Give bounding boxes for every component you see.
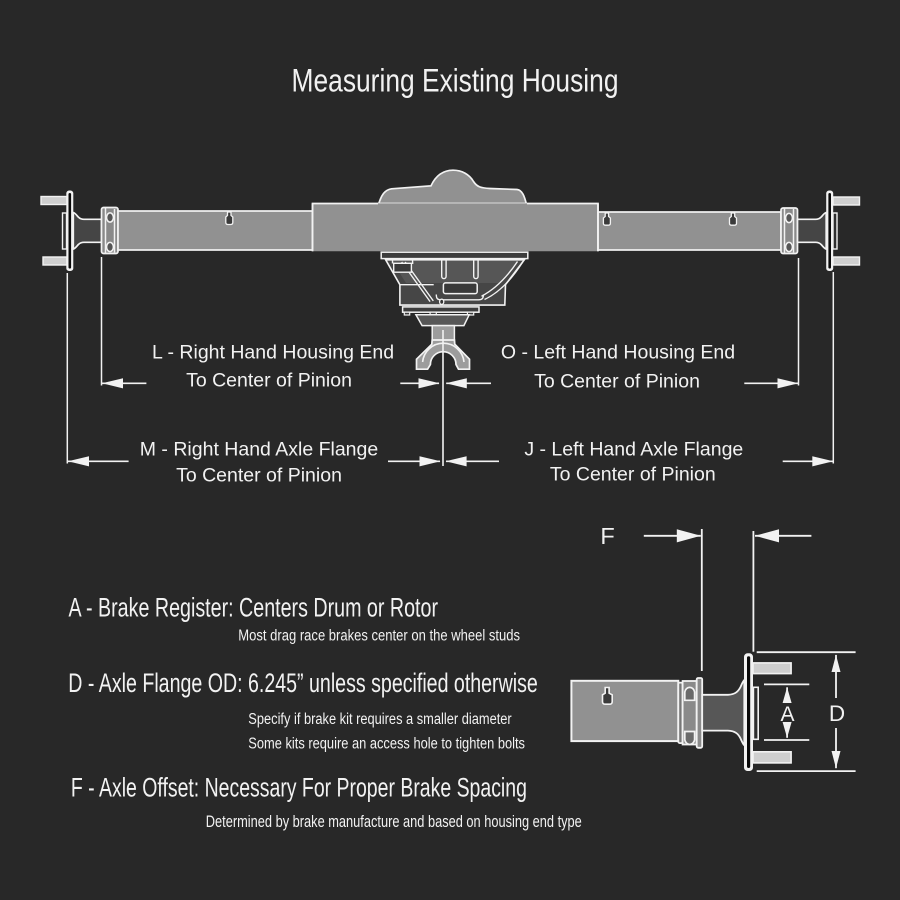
svg-text:Some kits require an access ho: Some kits require an access hole to tigh… (248, 735, 525, 752)
svg-text:Most drag race brakes center o: Most drag race brakes center on the whee… (238, 627, 520, 644)
svg-text:L - Right Hand Housing End: L - Right Hand Housing End (152, 342, 394, 364)
svg-text:M - Right Hand Axle Flange: M - Right Hand Axle Flange (140, 439, 378, 461)
svg-text:To Center of Pinion: To Center of Pinion (534, 371, 700, 393)
svg-text:D: D (829, 701, 845, 726)
svg-text:J - Left Hand Axle Flange: J - Left Hand Axle Flange (524, 439, 743, 461)
svg-text:Measuring Existing Housing: Measuring Existing Housing (292, 63, 619, 99)
svg-text:F: F (600, 523, 614, 549)
svg-text:A - Brake Register: Centers Dr: A - Brake Register: Centers Drum or Roto… (69, 592, 439, 622)
svg-text:Specify if brake kit requires: Specify if brake kit requires a smaller … (248, 711, 511, 728)
svg-text:F - Axle Offset: Necessary For: F - Axle Offset: Necessary For Proper Br… (71, 773, 527, 803)
svg-text:A: A (780, 703, 794, 726)
svg-text:To Center of Pinion: To Center of Pinion (550, 464, 716, 486)
svg-text:Determined by brake manufactur: Determined by brake manufacture and base… (206, 813, 582, 831)
svg-text:To Center of Pinion: To Center of Pinion (186, 370, 352, 392)
svg-text:D - Axle Flange OD: 6.245” unl: D - Axle Flange OD: 6.245” unless specif… (68, 668, 538, 698)
svg-text:To Center of Pinion: To Center of Pinion (176, 465, 342, 487)
svg-text:O - Left Hand Housing End: O - Left Hand Housing End (501, 342, 735, 364)
